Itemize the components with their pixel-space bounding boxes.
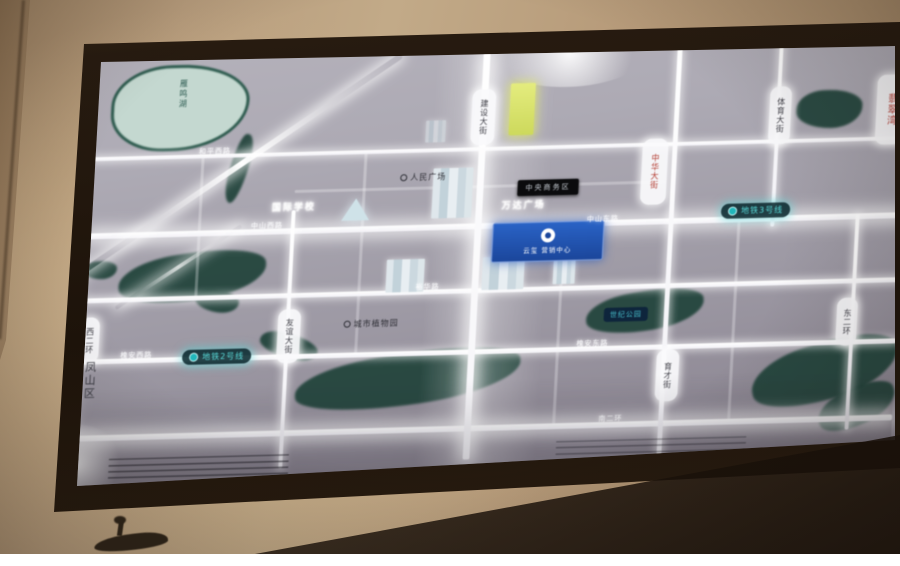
project-name-text: 云玺 — [523, 247, 538, 255]
park-botanical-text: 城市植物园 — [353, 318, 398, 328]
road-pill-youyi: 友谊大街 — [276, 309, 302, 364]
metro-icon — [728, 206, 737, 215]
building-cluster-icon — [552, 260, 575, 285]
road-label-huaian-w: 槐安西路 — [120, 350, 153, 361]
road-label-huaian-e: 槐安东路 — [576, 338, 609, 349]
poi-square-label: 人民广场 — [400, 171, 447, 183]
plant-silhouette — [88, 522, 174, 554]
building-cluster-icon — [425, 120, 446, 143]
project-ring-logo-icon — [541, 228, 556, 242]
poi-square-text: 人民广场 — [410, 172, 446, 182]
project-name: 云玺 营销中心 — [523, 244, 572, 255]
yellow-landmark-icon — [508, 83, 536, 136]
circle-marker-icon — [400, 174, 407, 181]
plant-top — [114, 516, 126, 524]
road-label-zhongshan-w: 中山西路 — [251, 220, 284, 231]
metro-line-2-text: 地铁2号线 — [202, 350, 245, 362]
metro-line-3-label: 地铁3号线 — [721, 202, 791, 219]
road-pill-zhonghua: 中华大街 — [640, 138, 669, 205]
park-northeast — [795, 89, 863, 129]
project-logo-box: 云玺 营销中心 — [491, 220, 605, 263]
park-botanical-label: 城市植物园 — [343, 317, 399, 329]
poi-mall-label: 万达广场 — [501, 197, 546, 211]
plant-body — [93, 530, 168, 554]
road-label-zhongshan-e: 中山东路 — [587, 214, 620, 225]
pyramid-building-icon — [341, 198, 370, 221]
metro-icon — [189, 353, 198, 362]
black-sign-label: 中央商务区 — [517, 179, 579, 197]
road-label-heping: 和平西路 — [199, 146, 232, 157]
project-subtitle-text: 营销中心 — [541, 246, 571, 255]
metro-line-2-label: 地铁2号线 — [182, 348, 252, 365]
road-pill-jianshe: 建设大街 — [470, 89, 497, 146]
road-label-yuhua: 裕华路 — [415, 281, 440, 292]
road-pill-east-ring: 东二环 — [835, 297, 859, 346]
road-pill-tiyu: 体育大街 — [767, 86, 792, 145]
metro-line-3-text: 地铁3号线 — [741, 204, 784, 216]
circle-marker-icon — [343, 321, 350, 328]
park-century-label: 世纪公园 — [603, 307, 648, 322]
poi-school-label: 国际学校 — [272, 200, 317, 214]
